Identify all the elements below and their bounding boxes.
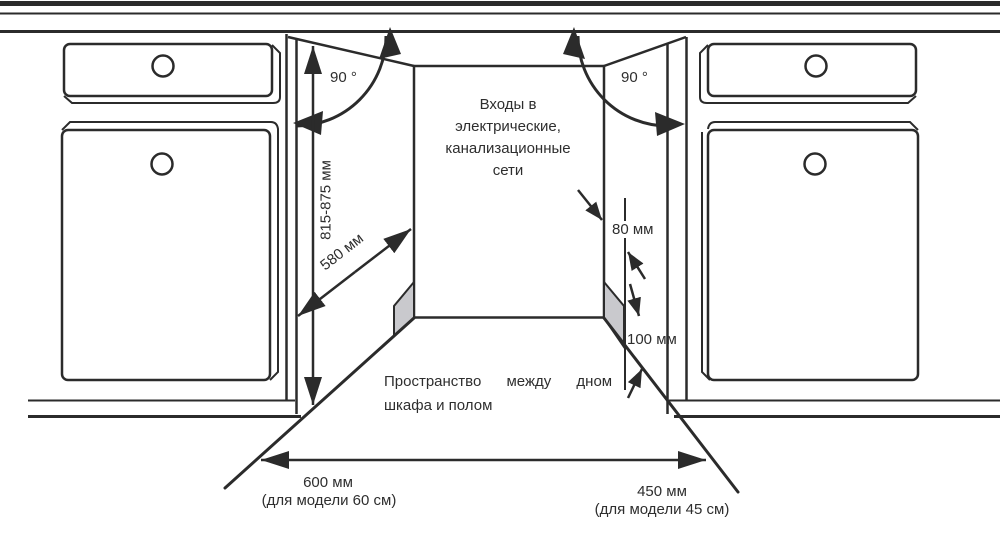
floor-space-label-line1: Пространство между дном [384,373,612,390]
door-knob-left [152,154,173,175]
diagram-linework [0,0,1000,536]
drawer-knob-right [806,56,827,77]
drawer-knob-left [153,56,174,77]
plinth-height-label: 100 мм [627,331,677,348]
side-gap-label: 80 мм [610,221,655,238]
niche-depth-dimension [355,229,411,272]
door-knob-right [805,154,826,175]
countertop [0,1,1000,32]
plinth-height-arrow-down [630,284,639,316]
floor-space-arrow [628,369,642,398]
floor-space-label-line2: шкафа и полом [384,397,492,414]
utilities-label: Входы в электрические, канализационные с… [418,94,598,182]
angle-left-label: 90 ° [330,69,357,86]
plinth-height-arrow-up [628,252,645,279]
width-45-note: (для модели 45 см) [595,501,730,518]
niche-height-label: 815-875 мм [318,160,335,240]
installation-diagram: 90 ° 90 ° Входы в электрические, канализ… [0,0,1000,536]
floor [28,318,1000,492]
plinth-recess-right [604,282,624,347]
side-gap-arrow [578,190,602,220]
angle-right-label: 90 ° [621,69,648,86]
left-cabinet [62,34,287,401]
right-cabinet [687,37,919,401]
width-60-label: 600 мм [303,474,353,491]
width-45-label: 450 мм [637,483,687,500]
width-60-note: (для модели 60 см) [262,492,397,509]
